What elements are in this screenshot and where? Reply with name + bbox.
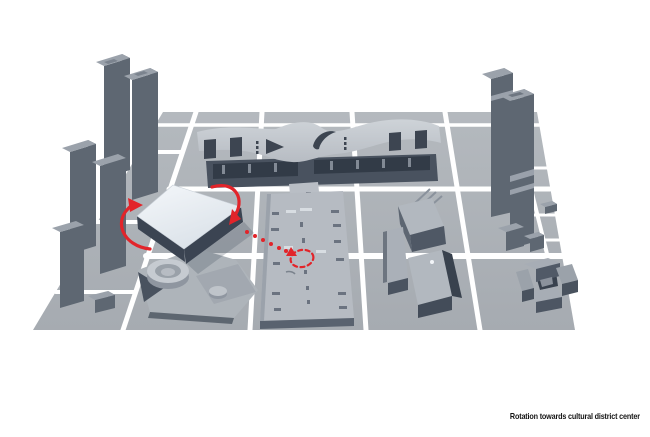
caption: Rotation towards cultural district cente… — [510, 411, 640, 421]
site-plan-3d: Rotation towards cultural district cente… — [0, 0, 650, 437]
podium-slab-building — [260, 191, 354, 329]
massing-diagram-canvas — [0, 0, 650, 437]
